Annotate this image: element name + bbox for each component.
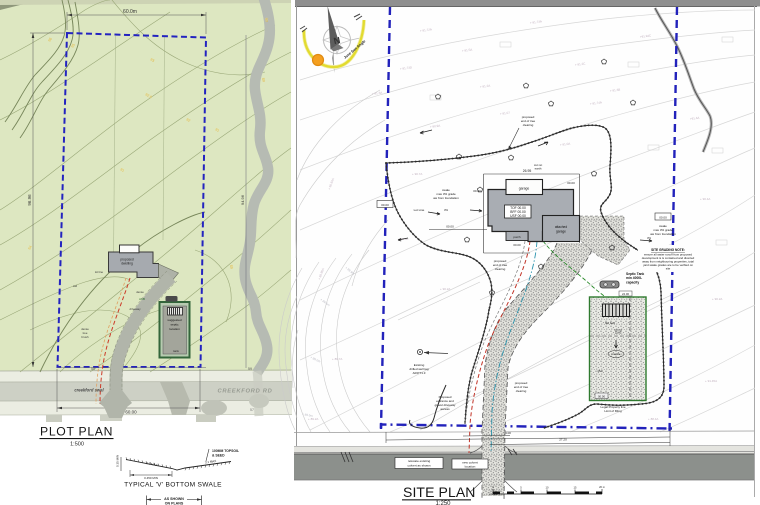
svg-text:00.00: 00.00 [659,215,667,219]
svg-text:aw from foundation: aw from foundation [650,232,676,236]
svg-text:00.00: 00.00 [446,225,454,229]
svg-text:clearing: clearing [523,123,534,127]
svg-text:earth: earth [535,167,542,171]
svg-text:+ 89.2A: + 89.2A [308,417,318,421]
svg-text:Lot Line: Lot Line [414,208,425,212]
svg-text:59: 59 [91,367,95,371]
svg-text:garage: garage [519,187,530,191]
svg-text:90: 90 [264,17,269,22]
svg-text:88: 88 [229,264,234,269]
svg-text:site: site [666,267,671,271]
svg-text:3%: 3% [444,208,449,212]
svg-text:1:250: 1:250 [435,501,451,505]
svg-text:septic: septic [170,323,179,327]
svg-text:aw from foundation: aw from foundation [433,196,459,200]
svg-text:access: access [440,407,450,411]
svg-text:94.96: 94.96 [240,194,245,205]
svg-text:TYPICAL 'V' BOTTOM SWALE: TYPICAL 'V' BOTTOM SWALE [124,482,222,489]
svg-text:CREEKFORD RD: CREEKFORD RD [217,389,272,395]
svg-text:& SEED: & SEED [212,454,225,458]
svg-text:dense: dense [136,290,144,294]
svg-text:clearing: clearing [516,389,527,393]
svg-text:SITE PLAN: SITE PLAN [403,484,475,500]
svg-text:26.95: 26.95 [523,169,532,173]
svg-text:mantle: mantle [611,352,620,356]
svg-text:00.00: 00.00 [567,181,575,185]
svg-text:59: 59 [248,367,252,371]
svg-text:60.00: 60.00 [125,410,137,415]
svg-text:+ 90.2A: + 90.2A [712,297,722,301]
svg-text:89: 89 [261,77,266,82]
svg-text:15: 15 [574,486,577,490]
svg-text:capacity: capacity [626,280,639,284]
svg-text:Limit of filling: Limit of filling [604,409,622,413]
svg-text:ACB: ACB [139,297,145,301]
svg-text:garage: garage [556,230,566,234]
svg-text:57: 57 [250,408,254,412]
svg-text:0.450 MIN: 0.450 MIN [144,476,158,480]
svg-text:1:500: 1:500 [70,442,84,448]
svg-text:100MM TOPSOIL: 100MM TOPSOIL [212,449,239,453]
svg-text:5: 5 [520,486,522,490]
svg-text:clearing: clearing [495,267,506,271]
svg-text:27.20: 27.20 [559,438,567,442]
svg-text:A03771.3: A03771.3 [413,371,426,375]
svg-text:tank: tank [173,349,179,353]
svg-text:96.96: 96.96 [27,194,32,206]
svg-text:+ 90.4A: + 90.4A [700,197,710,201]
svg-text:culvert as shown: culvert as shown [407,463,430,467]
svg-text:ON PLANS: ON PLANS [165,501,184,505]
svg-text:PLOT PLAN: PLOT PLAN [40,425,113,439]
svg-text:lot line: lot line [95,270,104,274]
svg-text:location: location [465,464,476,468]
svg-text:20 m: 20 m [599,485,605,489]
svg-text:file bed: file bed [605,321,615,325]
svg-text:+ 90.2A: + 90.2A [440,287,450,291]
svg-text:driveway: driveway [129,307,141,311]
svg-text:SITE GRADING NOTE:: SITE GRADING NOTE: [651,248,685,252]
svg-text:brush: brush [82,335,89,339]
svg-text:suggested: suggested [167,318,182,322]
svg-text:00.00: 00.00 [598,395,605,399]
svg-text:45.0: 45.0 [597,369,603,373]
svg-text:USF 00.00: USF 00.00 [510,214,526,218]
svg-text:+ 90.7A: + 90.7A [412,172,422,176]
svg-text:4.00: 4.00 [505,431,511,435]
svg-text:dwelling: dwelling [121,262,133,266]
svg-text:attached: attached [555,225,567,229]
svg-text:3%: 3% [647,236,652,240]
svg-text:swl: swl [73,284,77,288]
svg-text:00.00: 00.00 [513,243,521,247]
svg-text:+ 88.4A: + 88.4A [648,417,658,421]
svg-text:24.00: 24.00 [622,292,629,296]
svg-text:15.30: 15.30 [615,331,622,335]
svg-text:00.00: 00.00 [381,203,389,207]
svg-text:2:1 MAX: 2:1 MAX [146,461,158,467]
svg-text:location: location [169,327,180,331]
svg-text:00.00: 00.00 [473,189,481,193]
svg-text:+ 91.45A: + 91.45A [705,379,717,383]
svg-text:0.35 MIN: 0.35 MIN [116,455,120,467]
svg-text:60.0m: 60.0m [123,9,137,15]
svg-text:creekford swal: creekford swal [74,388,104,393]
svg-text:porch: porch [513,235,521,239]
svg-text:10: 10 [546,486,549,490]
svg-text:+ 89.7A: + 89.7A [332,357,342,361]
